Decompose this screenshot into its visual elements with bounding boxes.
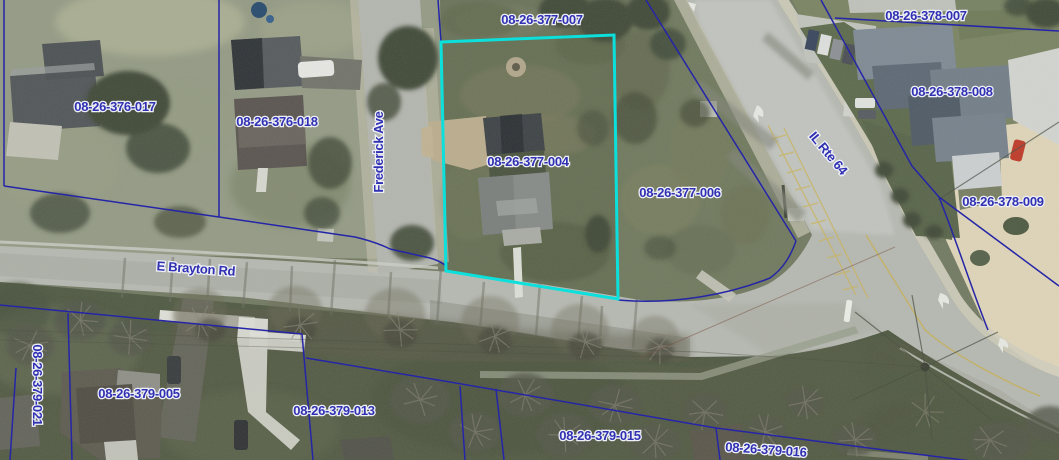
svg-text:08-26-376-017: 08-26-376-017	[74, 99, 155, 114]
svg-text:08-26-379-021: 08-26-379-021	[30, 344, 45, 425]
svg-text:08-26-377-006: 08-26-377-006	[639, 185, 720, 200]
svg-text:08-26-377-004: 08-26-377-004	[487, 154, 569, 169]
svg-text:08-26-379-015: 08-26-379-015	[559, 428, 640, 443]
svg-text:08-26-377-007: 08-26-377-007	[501, 12, 582, 27]
svg-text:08-26-376-018: 08-26-376-018	[236, 114, 317, 129]
svg-text:08-26-378-009: 08-26-378-009	[962, 194, 1043, 209]
svg-text:08-26-379-005: 08-26-379-005	[98, 386, 179, 401]
svg-text:08-26-378-008: 08-26-378-008	[911, 84, 992, 99]
svg-text:Frederick Ave: Frederick Ave	[371, 111, 386, 192]
svg-text:08-26-379-013: 08-26-379-013	[293, 403, 374, 418]
svg-text:08-26-378-007: 08-26-378-007	[885, 8, 966, 23]
